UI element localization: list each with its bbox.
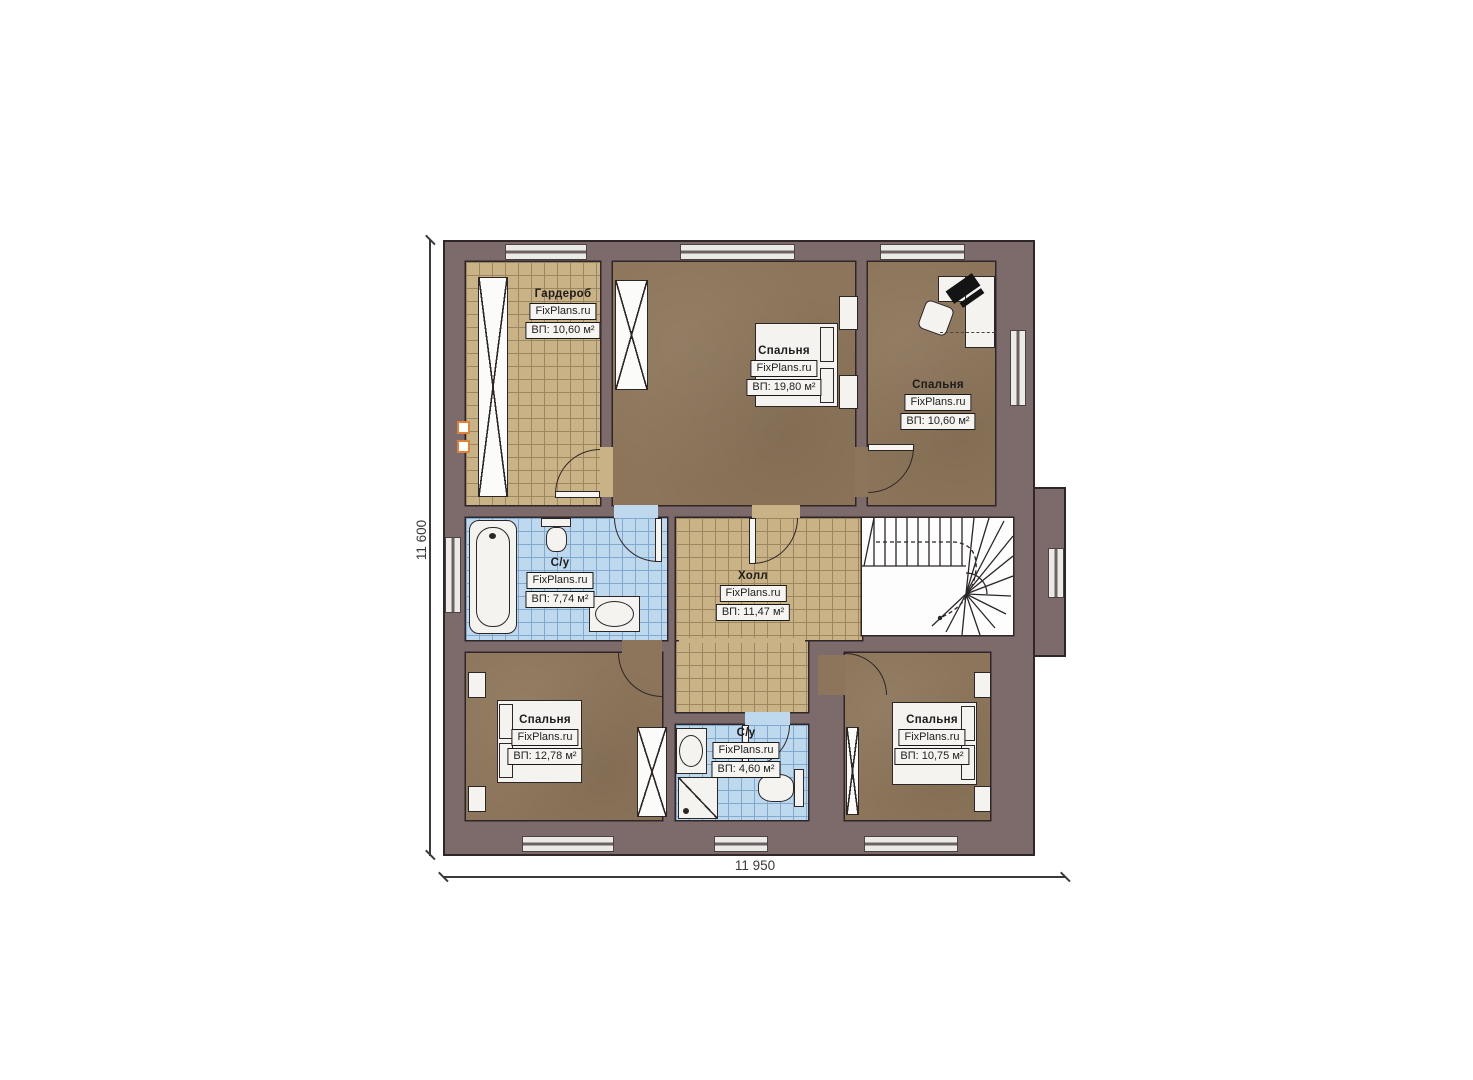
nightstand: [839, 375, 858, 409]
room-area: ВП: 12,78 м²: [507, 748, 582, 765]
nightstand: [974, 672, 991, 698]
room-name: Холл: [738, 570, 768, 582]
door-opening-bathroom-big: [614, 505, 658, 518]
room-name: Спальня: [912, 379, 964, 391]
window-right-bedroom: [1010, 330, 1026, 406]
nightstand: [468, 786, 486, 812]
hall-seam-patch: [679, 638, 805, 643]
watermark: FixPlans.ru: [898, 729, 965, 746]
door-opening-bedroom-big: [752, 505, 800, 518]
room-name: Спальня: [758, 345, 810, 357]
dimension-line-bottom: [443, 876, 1066, 878]
door-opening-bedroom-bottomright: [818, 655, 845, 695]
door-opening-bedroom-bottomleft: [622, 640, 662, 653]
room-area: ВП: 10,60 м²: [525, 322, 600, 339]
room-area: ВП: 4,60 м²: [711, 761, 780, 778]
room-name: С/у: [551, 557, 570, 569]
nightstand: [839, 296, 858, 330]
watermark: FixPlans.ru: [904, 394, 971, 411]
room-area: ВП: 11,47 м²: [716, 604, 790, 621]
room-label-bathroom-small: С/у FixPlans.ru ВП: 4,60 м²: [711, 727, 780, 778]
room-area: ВП: 10,75 м²: [894, 748, 969, 765]
dimension-height-label: 11 600: [414, 508, 430, 572]
door-opening-bathroom-small: [745, 712, 790, 725]
room-name: Спальня: [906, 714, 958, 726]
room-label-wardrobe: Гардероб FixPlans.ru ВП: 10,60 м²: [525, 288, 600, 339]
door-opening-wardrobe: [600, 447, 613, 497]
pillow: [820, 368, 834, 403]
room-name: Гардероб: [535, 288, 592, 300]
toilet-tank: [794, 769, 804, 807]
room-area: ВП: 7,74 м²: [525, 591, 594, 608]
closet-unit: [846, 727, 859, 815]
room-area: ВП: 19,80 м²: [746, 379, 821, 396]
window-left-bath: [445, 537, 461, 613]
window-right-stairs: [1048, 548, 1064, 598]
desk-dashed-line: [940, 332, 995, 333]
staircase: [862, 518, 1013, 635]
room-label-bedroom-big: Спальня FixPlans.ru ВП: 19,80 м²: [746, 345, 821, 396]
window-bottom-1: [522, 836, 614, 852]
room-label-bedroom-topright: Спальня FixPlans.ru ВП: 10,60 м²: [900, 379, 975, 430]
watermark: FixPlans.ru: [719, 585, 786, 602]
door-opening-bedroom-topright: [855, 447, 868, 497]
closet-unit: [637, 727, 667, 817]
window-bottom-2: [714, 836, 768, 852]
room-area: ВП: 10,60 м²: [900, 413, 975, 430]
sink-basin: [679, 735, 703, 767]
wall-marker: [457, 440, 470, 453]
pillow: [820, 327, 834, 362]
toilet: [546, 527, 567, 552]
room-label-bathroom-big: С/у FixPlans.ru ВП: 7,74 м²: [525, 557, 594, 608]
watermark: FixPlans.ru: [511, 729, 578, 746]
nightstand: [974, 786, 991, 812]
closet-unit: [615, 280, 648, 390]
watermark: FixPlans.ru: [526, 572, 593, 589]
toilet-tank: [541, 518, 571, 527]
room-label-hall: Холл FixPlans.ru ВП: 11,47 м²: [716, 570, 790, 621]
shower-drain: [683, 808, 689, 814]
watermark: FixPlans.ru: [750, 360, 817, 377]
wall-marker: [457, 421, 470, 434]
toilet: [758, 774, 794, 802]
floor-plan-canvas: Гардероб FixPlans.ru ВП: 10,60 м² Спальн…: [0, 0, 1473, 1080]
watermark: FixPlans.ru: [712, 742, 779, 759]
room-label-bedroom-bottomleft: Спальня FixPlans.ru ВП: 12,78 м²: [507, 714, 582, 765]
nightstand: [468, 672, 486, 698]
dimension-width-label: 11 950: [715, 858, 795, 873]
window-top-2: [680, 244, 795, 260]
room-name: Спальня: [519, 714, 571, 726]
room-name: С/у: [737, 727, 756, 739]
closet-unit: [478, 277, 508, 497]
bathtub-basin: [476, 527, 510, 627]
window-top-3: [880, 244, 965, 260]
window-top-1: [505, 244, 587, 260]
room-label-bedroom-bottomright: Спальня FixPlans.ru ВП: 10,75 м²: [894, 714, 969, 765]
bathtub-drain: [489, 533, 496, 539]
watermark: FixPlans.ru: [529, 303, 596, 320]
sink-basin: [595, 601, 634, 627]
window-bottom-3: [864, 836, 958, 852]
